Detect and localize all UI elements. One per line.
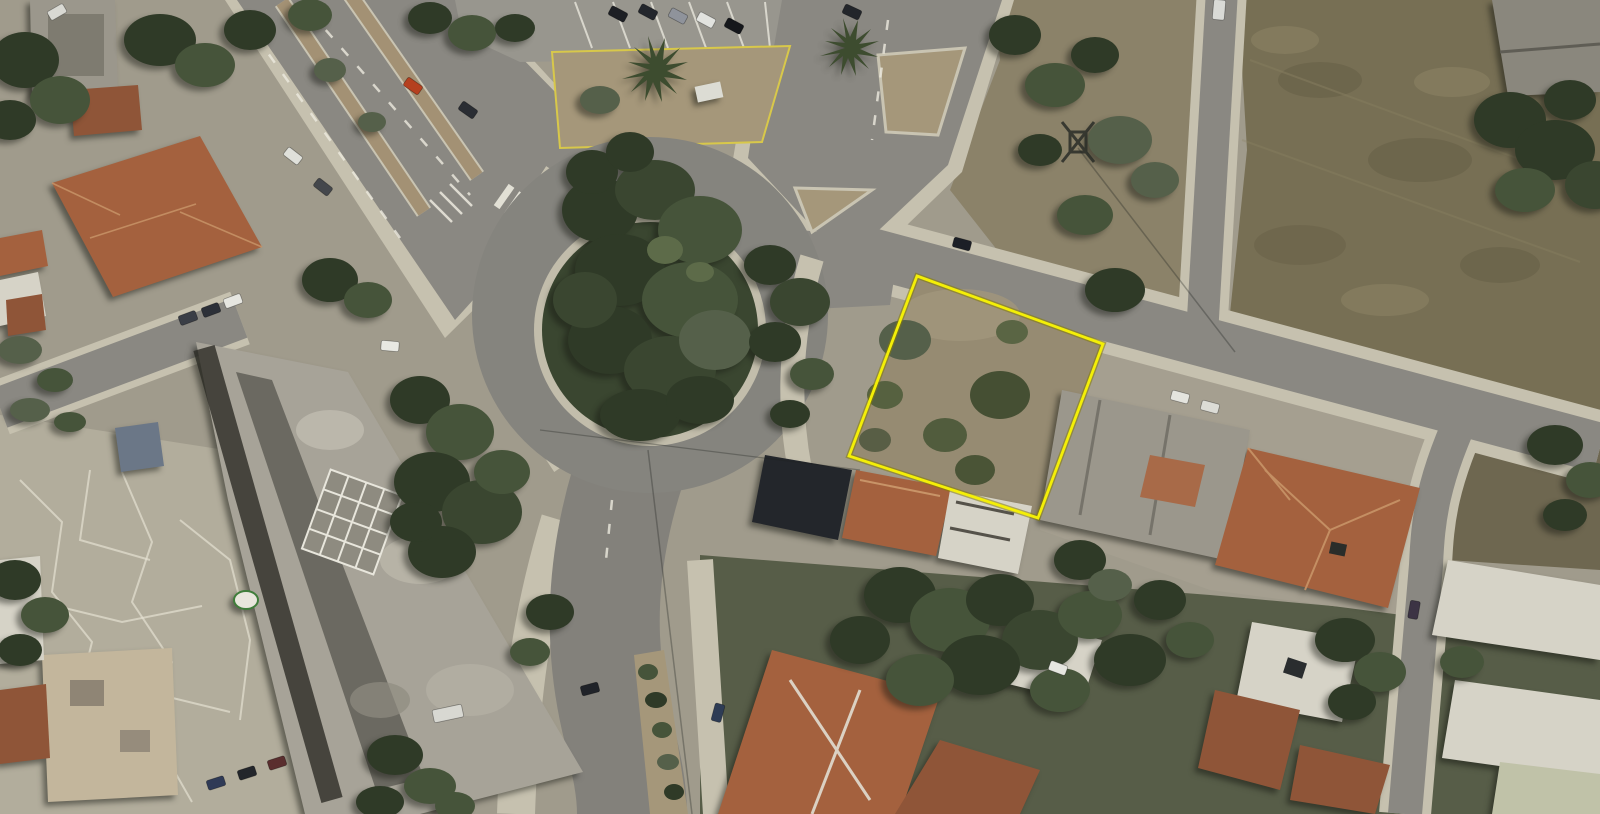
van — [1212, 0, 1226, 20]
street-north-right — [1202, 0, 1222, 335]
satellite-image — [0, 0, 1600, 814]
blue-roof-structure — [115, 422, 164, 472]
road-south — [605, 446, 638, 814]
beige-flat-roof-building — [42, 648, 178, 802]
red-gable-roof-bottom-left — [0, 684, 50, 764]
kiosk-green-roof — [234, 591, 258, 609]
car — [381, 340, 400, 352]
satellite-image-stage — [0, 0, 1600, 814]
